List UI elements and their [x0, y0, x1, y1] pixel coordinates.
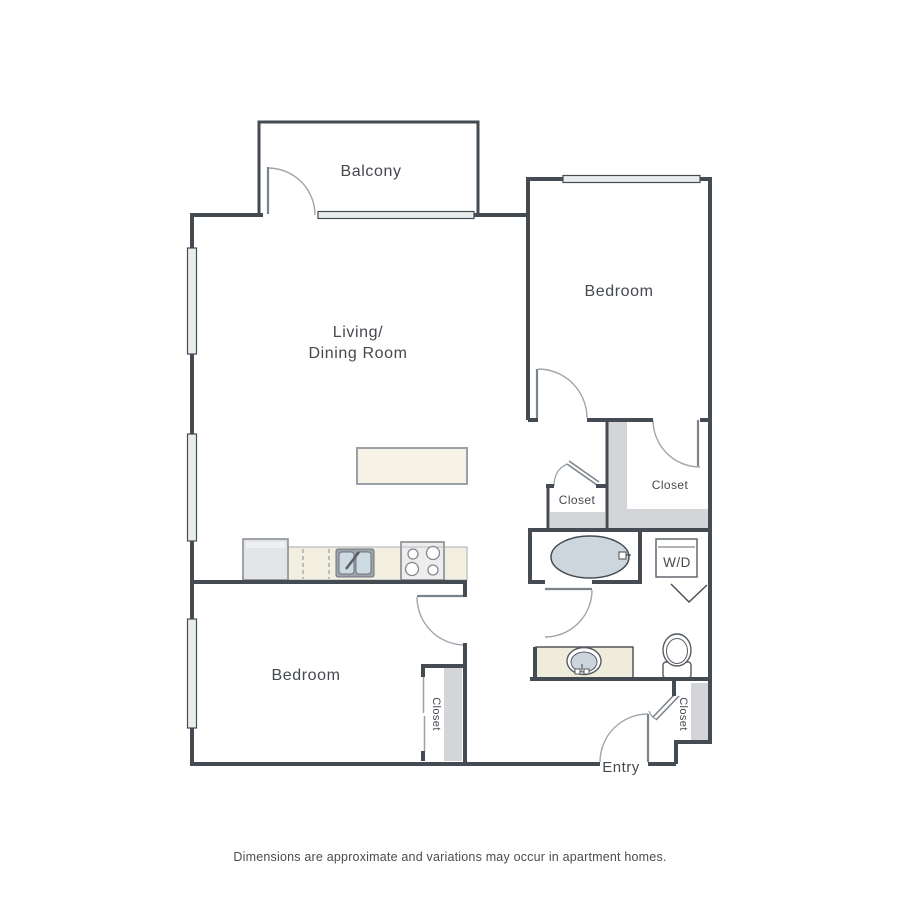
entry-closet-bifold-door [649, 693, 679, 720]
walk-in-closet-shelf-band [627, 509, 708, 530]
bedroom-closet-label: Closet [430, 697, 442, 731]
bedroom-upper-door [537, 369, 587, 418]
entry-closet-label: Closet [677, 697, 689, 731]
living-dining-label-line2: Dining Room [308, 345, 407, 362]
bathtub-icon [551, 536, 631, 578]
bedroom-upper-window [563, 176, 700, 183]
kitchen-sink-icon [336, 549, 374, 577]
thick-wall-shading [608, 420, 627, 530]
balcony-door [268, 167, 315, 215]
bedroom-upper-label: Bedroom [584, 283, 653, 300]
bedroom-lower-window [188, 619, 197, 728]
floor-plan-canvas: Balcony Living/ Dining Room Bedroom Bedr… [0, 0, 900, 900]
hall-closet-shelf-band [550, 512, 605, 530]
living-room-side-window-1 [188, 248, 197, 354]
bedroom-closet-sliding-door [424, 677, 425, 752]
hall-closet-bifold-door [554, 461, 599, 486]
entry-door [600, 714, 648, 762]
floor-plan-page: Balcony Living/ Dining Room Bedroom Bedr… [0, 0, 900, 900]
walk-in-closet-label: Closet [652, 478, 689, 492]
vanity-sink-icon [536, 647, 633, 678]
stove-icon [401, 542, 444, 580]
kitchen [243, 448, 467, 580]
disclaimer-text: Dimensions are approximate and variation… [233, 850, 666, 864]
living-dining-label-line1: Living/ [333, 324, 383, 341]
washer-dryer-label: W/D [663, 555, 691, 570]
washer-dryer-icon [656, 539, 707, 602]
refrigerator-icon [243, 539, 288, 580]
living-room-side-window-2 [188, 434, 197, 541]
bedroom-lower-door [417, 596, 465, 645]
balcony-label: Balcony [340, 163, 401, 180]
toilet-icon [663, 634, 691, 678]
kitchen-island [357, 448, 467, 484]
bathroom-door [545, 589, 592, 637]
walk-in-closet-door [653, 420, 700, 467]
bedroom-lower-label: Bedroom [271, 667, 340, 684]
entry-label: Entry [602, 759, 640, 776]
bedroom-closet-shelf-band [444, 668, 462, 761]
hall-closet-label: Closet [559, 493, 596, 507]
living-room-window [318, 212, 474, 219]
entry-closet-shelf-band [691, 683, 708, 741]
wd-closet-chevron [671, 584, 707, 602]
